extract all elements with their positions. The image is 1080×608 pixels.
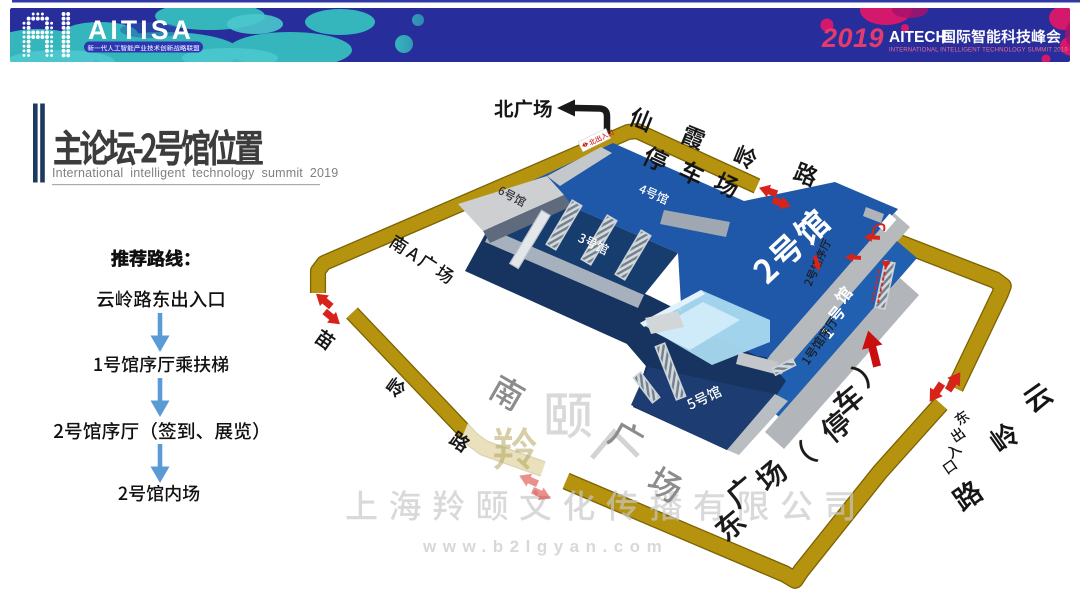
- svg-text:2019: 2019: [821, 23, 884, 53]
- svg-text:International intelligent tech: International intelligent technology sum…: [52, 166, 338, 180]
- svg-text:INTERNATIONAL INTELLIGENT TECH: INTERNATIONAL INTELLIGENT TECHNOLOGY SUM…: [889, 47, 1068, 54]
- svg-text:AITECH: AITECH: [889, 29, 947, 46]
- svg-text:AITISA: AITISA: [88, 15, 194, 45]
- svg-text:www.b2lgyan.com: www.b2lgyan.com: [422, 537, 668, 556]
